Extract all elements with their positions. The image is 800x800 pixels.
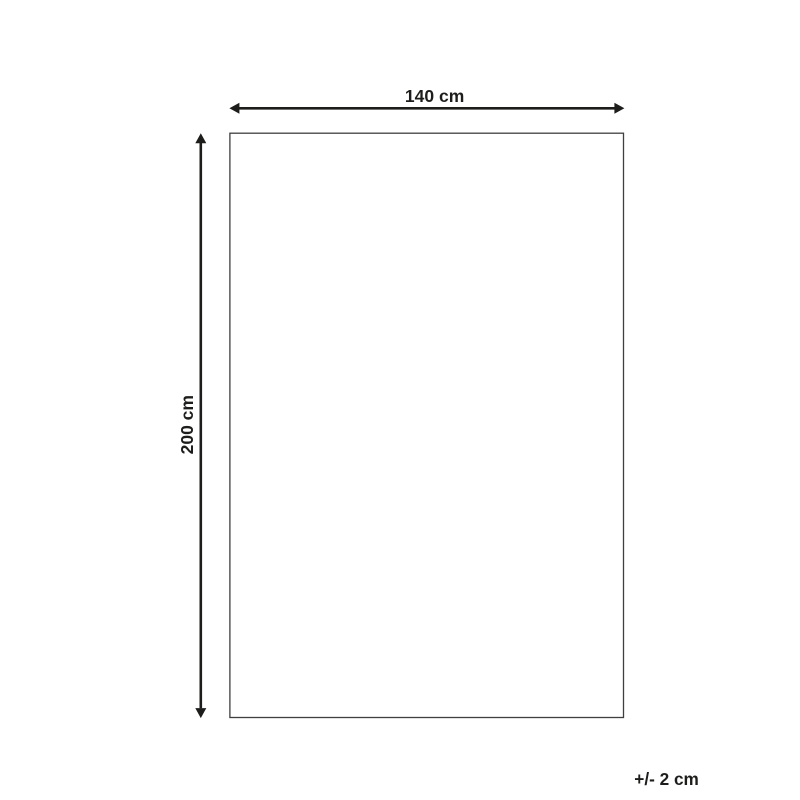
svg-text:140 cm: 140 cm bbox=[405, 86, 464, 106]
svg-text:+/- 2 cm: +/- 2 cm bbox=[634, 769, 699, 789]
svg-text:200 cm: 200 cm bbox=[177, 395, 197, 454]
